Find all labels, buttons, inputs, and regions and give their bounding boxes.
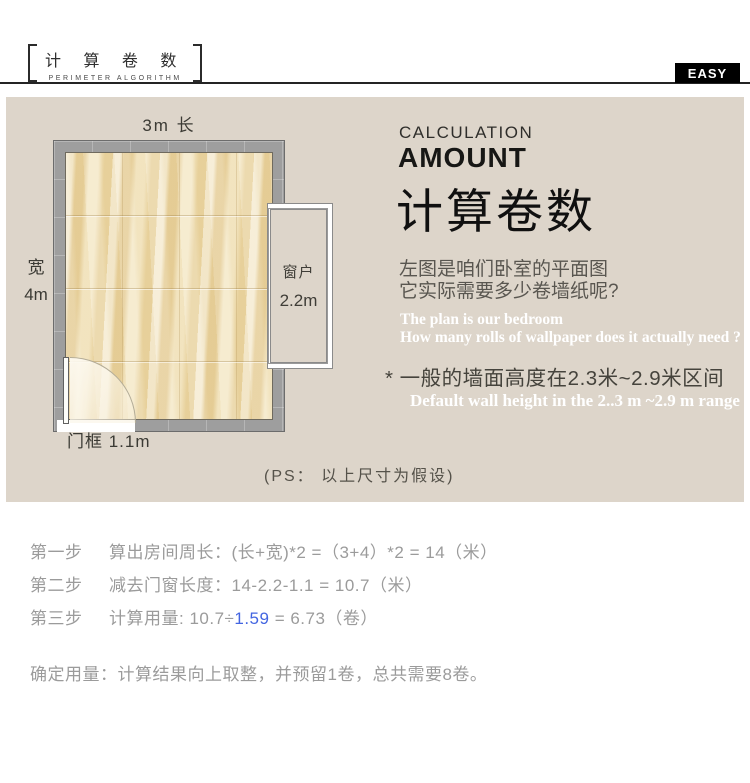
width-label-cn: 宽 (14, 254, 58, 281)
headline-cn: 计算卷数 (396, 173, 596, 242)
description-cn: 左图是咱们卧室的平面图 它实际需要多少卷墙纸呢? (399, 259, 619, 302)
step-2-text: 减去门窗长度：14-2.2-1.1 = 10.7（米） (109, 576, 422, 595)
calculation-steps: 第一步算出房间周长：(长+宽)*2 =（3+4）*2 = 14（米） 第二步减去… (0, 502, 750, 783)
page: 计 算 卷 数 PERIMETER ALGORITHM EASY 3m 长 窗户… (0, 0, 750, 783)
difficulty-badge: EASY (675, 63, 740, 83)
step-row-1: 第一步算出房间周长：(长+宽)*2 =（3+4）*2 = 14（米） (30, 538, 498, 563)
description-cn-line1: 左图是咱们卧室的平面图 (399, 259, 619, 281)
window-inner: 窗户 2.2m (270, 209, 327, 363)
bracket-right-icon (193, 44, 202, 82)
wall-height-note-cn: * 一般的墙面高度在2.3米~2.9米区间 (385, 361, 724, 391)
step-row-3: 第三步计算用量: 10.7÷1.59 = 6.73（卷） (30, 604, 378, 629)
description-en-line2: How many rolls of wallpaper does it actu… (400, 329, 741, 347)
width-label-value: 4m (14, 281, 58, 308)
headline-en-line2: AMOUNT (398, 142, 527, 174)
step-3-text-post: = 6.73（卷） (269, 609, 377, 628)
window-label: 窗户 (282, 261, 314, 282)
bracket-left-icon (28, 44, 37, 82)
ps-note: (PS： 以上尺寸为假设) (264, 462, 454, 486)
conclusion-text: 确定用量：计算结果向上取整，并预留1卷，总共需要8卷。 (30, 660, 487, 685)
floorplan-room: 窗户 2.2m (53, 140, 285, 432)
step-row-2: 第二步减去门窗长度：14-2.2-1.1 = 10.7（米） (30, 571, 422, 596)
length-dimension-label: 3m 长 (53, 111, 285, 136)
window-dimension: 2.2m (280, 291, 318, 311)
step-1-text: 算出房间周长：(长+宽)*2 =（3+4）*2 = 14（米） (109, 543, 498, 562)
brand-text: 计 算 卷 数 PERIMETER ALGORITHM (45, 44, 185, 82)
width-dimension-label: 宽 4m (14, 254, 58, 308)
door-leaf-icon (63, 357, 69, 424)
step-3-text-pre: 计算用量: 10.7÷ (109, 609, 234, 628)
header-divider (0, 82, 750, 84)
step-3-label: 第三步 (30, 604, 94, 629)
step-2-label: 第二步 (30, 571, 94, 596)
description-cn-line2: 它实际需要多少卷墙纸呢? (399, 281, 619, 303)
brand-logo: 计 算 卷 数 PERIMETER ALGORITHM (28, 44, 202, 82)
brand-subtitle: PERIMETER ALGORITHM (45, 75, 185, 82)
description-en: The plan is our bedroom How many rolls o… (400, 311, 741, 346)
description-en-line1: The plan is our bedroom (400, 311, 741, 329)
wall-height-note-en: Default wall height in the 2..3 m ~2.9 m… (410, 391, 740, 411)
info-panel: 3m 长 窗户 2.2m 宽 4m 门框 1.1m (PS： 以上尺寸为假设) … (6, 97, 744, 502)
headline-en-line1: CALCULATION (399, 123, 533, 143)
window-icon: 窗户 2.2m (267, 203, 333, 369)
brand-title: 计 算 卷 数 (45, 47, 185, 71)
step-3-highlight-value: 1.59 (234, 609, 269, 628)
step-1-label: 第一步 (30, 538, 94, 563)
